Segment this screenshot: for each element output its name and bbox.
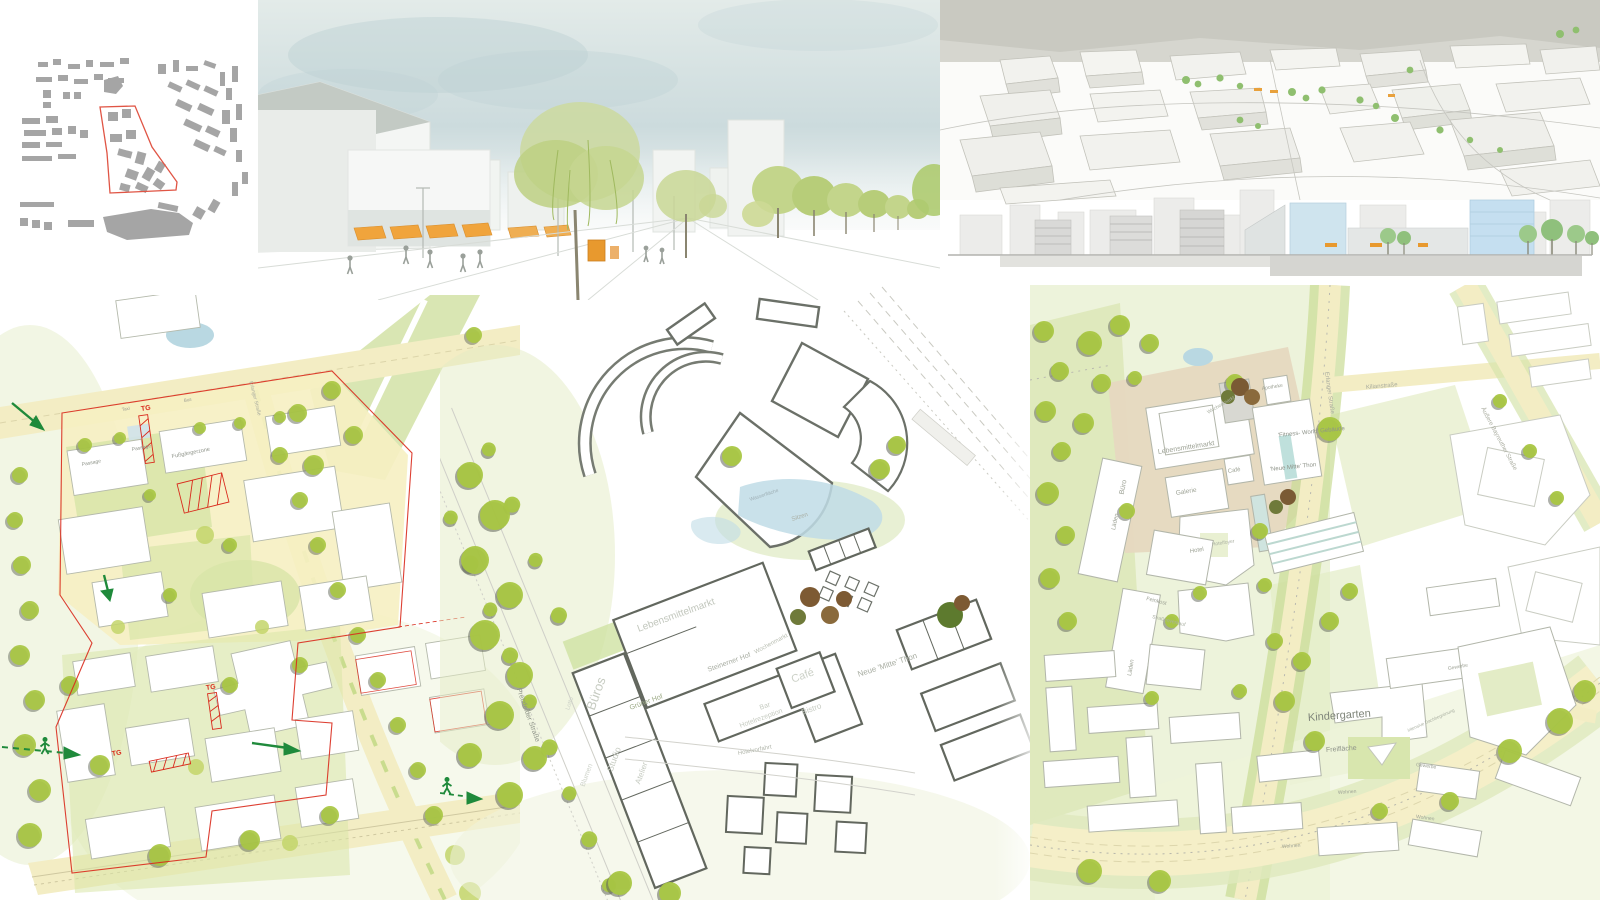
pedestrian-arrow [440,777,482,804]
aerial-view-and-elevation [940,0,1600,290]
perspective-drawing [258,0,940,300]
elevation-base-left [1000,256,1272,267]
masterplan: Lebensmittelmarkt Büro Läden Läden Galer… [1030,285,1600,900]
pond [1183,348,1213,366]
street-perspective-rendering [258,0,940,300]
aerial-drawing [940,0,1600,290]
pedestrian-icon [443,777,452,794]
tg-ramp-label: TG [206,684,217,692]
masterplan-presentation-board: TG TG TG Passage Passage Fußgängerzone T… [0,0,1600,900]
tg-ramp-label: TG [141,405,152,413]
site-location-map [8,22,258,240]
elevation-foreground-buildings [1035,200,1534,255]
market-square-trees [790,587,970,628]
figure-ground-drawing [8,22,258,240]
masterplan-drawing [1030,285,1600,900]
elevation-drawing [948,190,1599,276]
elevation-base-right [1270,256,1582,276]
groundfloor-plan: Pretzfelder Straße Lebensmittelmarkt Bür… [440,285,1040,900]
groundfloor-plan-drawing [440,285,1040,900]
existing-buildings-group [20,58,248,240]
